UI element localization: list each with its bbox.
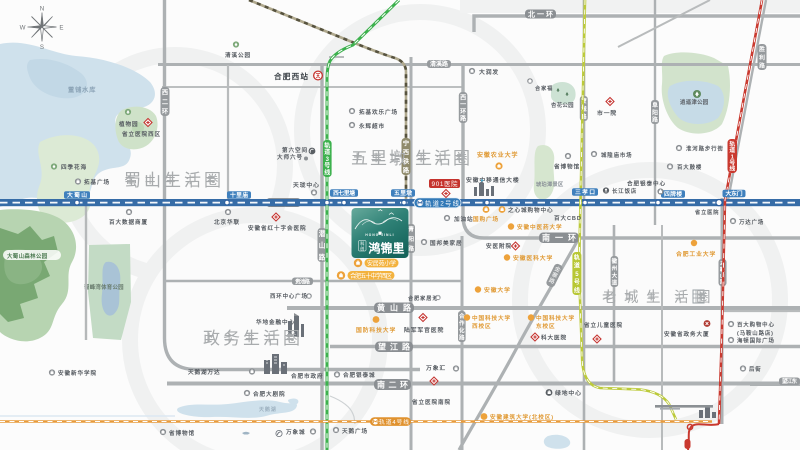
- svg-text:N: N: [40, 6, 44, 13]
- svg-text:大润发: 大润发: [479, 68, 499, 76]
- svg-text:望江路: 望江路: [378, 342, 411, 352]
- svg-text:万达广场: 万达广场: [738, 218, 764, 226]
- svg-text:第六空间: 第六空间: [281, 146, 308, 154]
- svg-text:胜利路: 胜利路: [758, 45, 765, 69]
- svg-text:清溪公园: 清溪公园: [225, 51, 251, 59]
- svg-text:十里庙: 十里庙: [230, 191, 248, 199]
- svg-text:万象城: 万象城: [285, 428, 305, 436]
- svg-text:合家福: 合家福: [535, 84, 553, 92]
- svg-text:安徽省红十字会医院: 安徽省红十字会医院: [248, 224, 306, 232]
- svg-text:杏花公园: 杏花公园: [551, 101, 574, 109]
- svg-text:(马鞍山路店): (马鞍山路店): [737, 329, 774, 337]
- svg-text:大蜀山: 大蜀山: [67, 191, 87, 199]
- svg-text:合肥工业大学: 合肥工业大学: [676, 250, 716, 258]
- svg-text:安徽中医药大学: 安徽中医药大学: [517, 223, 562, 231]
- svg-text:董铺水库: 董铺水库: [68, 86, 96, 94]
- svg-text:安徽新华学院: 安徽新华学院: [58, 369, 97, 377]
- svg-text:安徽中移通信大楼: 安徽中移通信大楼: [466, 176, 520, 184]
- svg-text:E: E: [59, 24, 63, 31]
- svg-text:安徽建筑大学(北校区): 安徽建筑大学(北校区): [490, 413, 554, 421]
- svg-text:省博物馆: 省博物馆: [168, 429, 195, 437]
- svg-text:黄山路: 黄山路: [377, 303, 412, 313]
- svg-text:蜀峰湾体育公园: 蜀峰湾体育公园: [84, 283, 124, 291]
- svg-text:淮河路步行街: 淮河路步行街: [686, 145, 724, 153]
- svg-text:合肥市政府: 合肥市政府: [291, 372, 323, 380]
- svg-text:清溪路: 清溪路: [430, 60, 449, 68]
- svg-text:加油站: 加油站: [453, 215, 473, 223]
- svg-text:北一环: 北一环: [528, 10, 553, 19]
- svg-text:徽州大道: 徽州大道: [611, 257, 618, 287]
- svg-text:省立儿童医院: 省立儿童医院: [583, 321, 623, 329]
- svg-text:南二环: 南二环: [377, 379, 408, 389]
- svg-text:东校区: 东校区: [536, 322, 555, 330]
- svg-text:安医附院: 安医附院: [486, 242, 512, 250]
- svg-text:大蜀山森林公园: 大蜀山森林公园: [7, 252, 48, 260]
- svg-text:安居苑小学: 安居苑小学: [367, 260, 396, 268]
- svg-text:西校区: 西校区: [472, 322, 491, 330]
- svg-text:天鹅湖万达: 天鹅湖万达: [188, 368, 220, 376]
- svg-text:城隍庙市场: 城隍庙市场: [601, 151, 632, 159]
- svg-text:五里墩: 五里墩: [394, 189, 412, 197]
- svg-text:省立医院西区: 省立医院西区: [121, 130, 161, 138]
- svg-text:拓基欢乐广场: 拓基欢乐广场: [359, 108, 398, 116]
- svg-text:贵池路: 贵池路: [295, 277, 310, 285]
- svg-text:阜阳路: 阜阳路: [652, 101, 658, 123]
- svg-text:901医院: 901医院: [432, 179, 459, 188]
- svg-text:合肥银泰城: 合肥银泰城: [343, 371, 375, 379]
- svg-text:绿地中心: 绿地中心: [555, 389, 582, 397]
- svg-text:长江饭店: 长江饭店: [612, 187, 637, 195]
- svg-text:青阳路: 青阳路: [408, 225, 414, 252]
- svg-text:之心城购物中心: 之心城购物中心: [508, 206, 553, 214]
- svg-text:安徽农业大学: 安徽农业大学: [477, 151, 518, 159]
- svg-text:国邦美家居: 国邦美家居: [430, 239, 462, 247]
- svg-text:万象汇: 万象汇: [425, 364, 446, 372]
- svg-text:合肥西站: 合肥西站: [274, 71, 309, 81]
- svg-text:合肥大剧院: 合肥大剧院: [253, 390, 285, 398]
- svg-text:政务生活圈: 政务生活圈: [203, 329, 300, 348]
- svg-text:国防科技大学: 国防科技大学: [356, 326, 396, 334]
- svg-text:国购广场: 国购广场: [473, 215, 499, 223]
- svg-text:安徽省政务大厦: 安徽省政务大厦: [664, 330, 709, 338]
- svg-text:安徽大学: 安徽大学: [484, 286, 511, 294]
- svg-text:创: 创: [360, 245, 364, 252]
- svg-text:天鹅广场: 天鹅广场: [342, 427, 368, 435]
- svg-text:西一环路: 西一环路: [460, 93, 467, 122]
- svg-text:三孝口: 三孝口: [575, 188, 595, 196]
- svg-text:省博物馆: 省博物馆: [553, 163, 580, 171]
- svg-text:百大购物中心: 百大购物中心: [737, 321, 775, 329]
- svg-text:西七里塘: 西七里塘: [333, 189, 355, 197]
- svg-text:拓基广场: 拓基广场: [84, 178, 110, 186]
- svg-text:百大CBD: 百大CBD: [554, 214, 582, 222]
- svg-text:陆军军官医院: 陆军军官医院: [404, 326, 444, 334]
- svg-text:安徽医科大学: 安徽医科大学: [513, 254, 553, 262]
- svg-text:省立医院: 省立医院: [694, 208, 719, 216]
- svg-text:后街: 后街: [749, 365, 762, 373]
- svg-text:百大鼓楼: 百大鼓楼: [677, 163, 702, 171]
- svg-text:蜀山生活圈: 蜀山生活圈: [124, 171, 221, 190]
- svg-text:大师六号: 大师六号: [277, 153, 303, 161]
- svg-text:中国科技大学: 中国科技大学: [472, 314, 511, 322]
- svg-text:植物园: 植物园: [118, 120, 138, 128]
- svg-text:西环中心广场: 西环中心广场: [270, 292, 308, 300]
- svg-text:望江东: 望江东: [782, 377, 798, 385]
- svg-text:合肥家居港: 合肥家居港: [408, 294, 438, 302]
- svg-text:逍遥津公园: 逍遥津公园: [680, 98, 709, 106]
- svg-text:合肥五十中学西区: 合肥五十中学西区: [350, 272, 392, 280]
- svg-text:大东门: 大东门: [726, 190, 743, 198]
- svg-text:四牌楼: 四牌楼: [664, 190, 682, 198]
- svg-text:北京华联: 北京华联: [214, 218, 240, 226]
- svg-text:市一院: 市一院: [597, 109, 617, 117]
- svg-text:天鹅湖: 天鹅湖: [259, 406, 277, 413]
- svg-text:轨道4号线: 轨道4号线: [379, 418, 409, 426]
- svg-text:潜山路: 潜山路: [319, 229, 326, 262]
- svg-text:S: S: [40, 44, 44, 51]
- svg-text:琥珀潭景区: 琥珀潭景区: [536, 180, 564, 188]
- svg-text:永辉超市: 永辉超市: [359, 122, 385, 130]
- svg-text:海顿国际广场: 海顿国际广场: [737, 337, 775, 345]
- svg-text:中国科技大学: 中国科技大学: [536, 314, 575, 322]
- svg-text:W: W: [20, 24, 26, 31]
- svg-text:科大医院: 科大医院: [541, 334, 567, 342]
- svg-text:四季花海: 四季花海: [61, 163, 87, 171]
- svg-text:轨道2号线: 轨道2号线: [425, 199, 460, 208]
- svg-text:百大数据商厦: 百大数据商厦: [109, 218, 148, 226]
- svg-text:西二环: 西二环: [162, 88, 168, 115]
- svg-text:南一环: 南一环: [542, 233, 576, 243]
- svg-text:省立医院南院: 省立医院南院: [411, 398, 451, 406]
- svg-text:天珑中心: 天珑中心: [293, 181, 320, 189]
- svg-text:合肥银泰中心: 合肥银泰中心: [627, 180, 666, 188]
